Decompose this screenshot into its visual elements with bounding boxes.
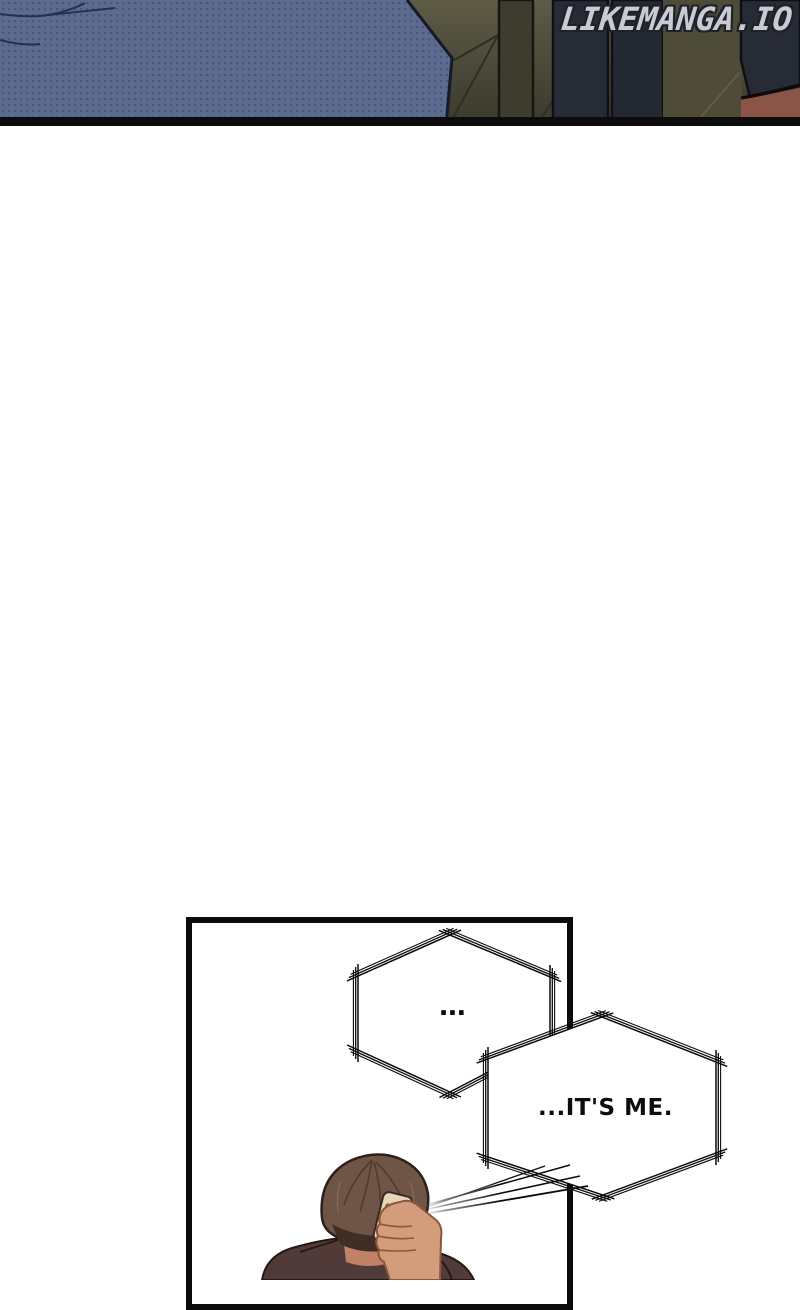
character bbox=[262, 1154, 474, 1280]
bubble-its-me-text: ...IT'S ME. bbox=[518, 1093, 693, 1123]
furniture-leg bbox=[499, 0, 533, 126]
bed bbox=[0, 0, 452, 126]
panel-border-bottom bbox=[0, 117, 800, 126]
bubble-ellipsis-text: ... bbox=[412, 992, 492, 1022]
bottom-panel-art bbox=[0, 900, 800, 1280]
watermark: LIKEMANGA.IO bbox=[559, 3, 794, 35]
